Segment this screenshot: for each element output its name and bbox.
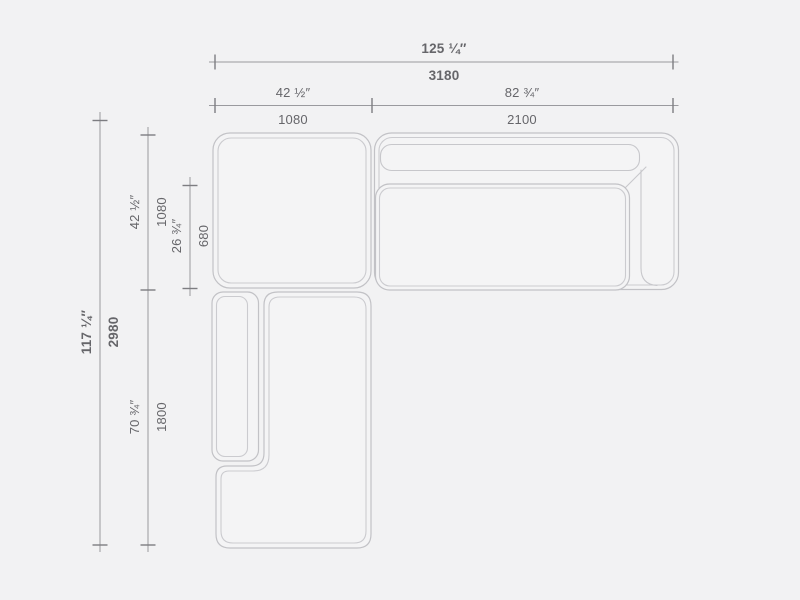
corner-module-outline [213, 133, 371, 288]
sofa-back-cushion-outline [381, 145, 640, 171]
chaise-armrest-outline [212, 292, 259, 461]
sofa-seat-cushion-outline [376, 184, 630, 290]
sofa-plan-svg [0, 0, 800, 600]
sofa-dimension-drawing: 125 ¼″ 3180 42 ½″ 1080 82 ¾″ 2100 117 ¼″… [0, 0, 800, 600]
